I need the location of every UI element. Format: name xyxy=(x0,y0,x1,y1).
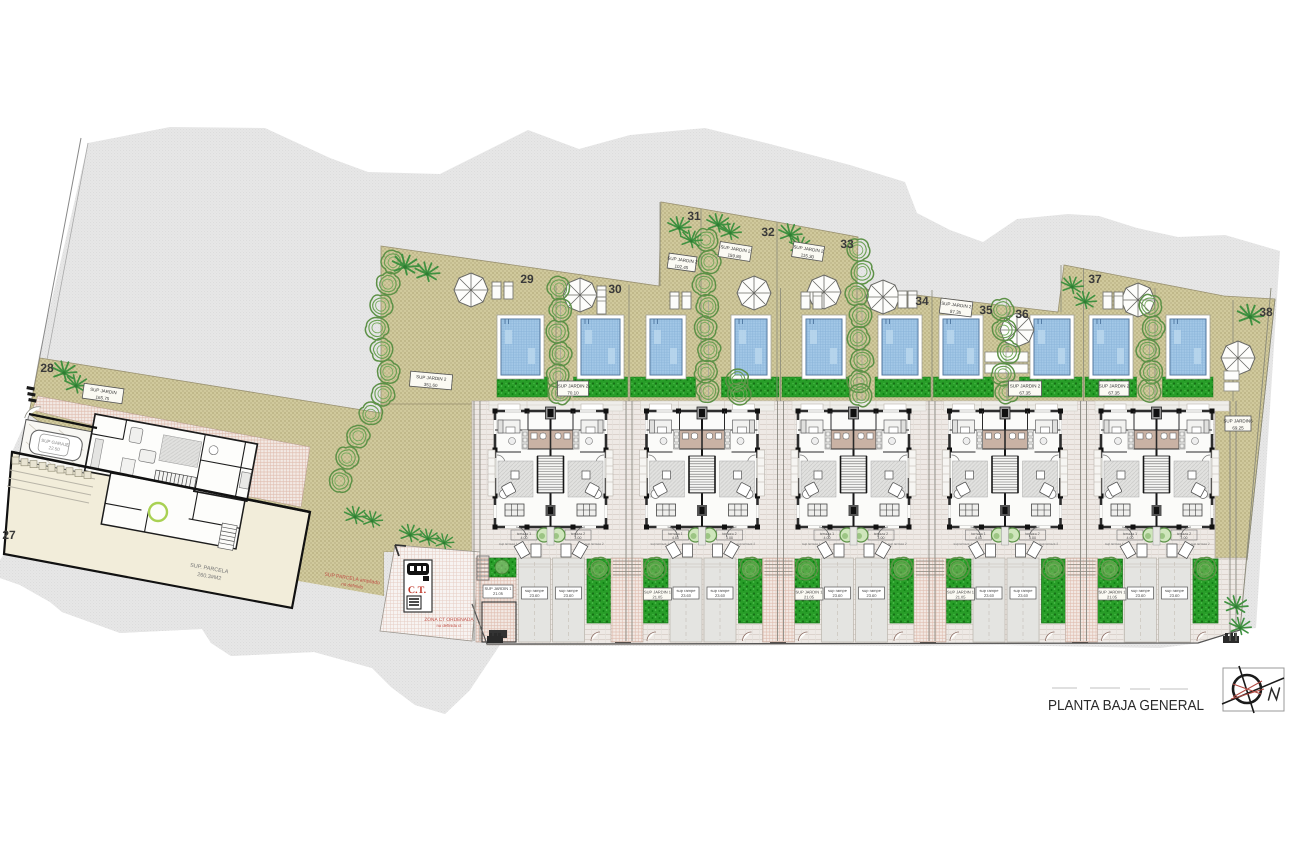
svg-text:23.60: 23.60 xyxy=(832,593,843,598)
svg-text:38: 38 xyxy=(1259,305,1273,319)
svg-text:23.60: 23.60 xyxy=(1135,593,1146,598)
svg-text:SUP JARDIN 2: SUP JARDIN 2 xyxy=(558,384,589,389)
svg-text:23.60: 23.60 xyxy=(1169,593,1180,598)
svg-text:sup terraza 2: sup terraza 2 xyxy=(585,542,604,546)
svg-text:sup terraza 1: sup terraza 1 xyxy=(499,542,518,546)
svg-text:67.35: 67.35 xyxy=(1108,391,1120,396)
svg-text:29: 29 xyxy=(520,272,534,286)
svg-text:PLANTA BAJA GENERAL: PLANTA BAJA GENERAL xyxy=(1048,698,1204,714)
svg-text:4.00: 4.00 xyxy=(672,536,679,540)
svg-text:4.00: 4.00 xyxy=(726,536,733,540)
svg-text:SUP JARDIN6: SUP JARDIN6 xyxy=(1223,419,1253,424)
svg-text:sup terraza 1: sup terraza 1 xyxy=(651,542,670,546)
svg-text:35: 35 xyxy=(979,303,993,317)
svg-text:33: 33 xyxy=(840,237,854,251)
svg-text:21.05: 21.05 xyxy=(804,595,815,600)
svg-text:21.05: 21.05 xyxy=(652,595,663,600)
svg-text:4.00: 4.00 xyxy=(1127,536,1134,540)
svg-text:sup terraza 2: sup terraza 2 xyxy=(888,542,907,546)
svg-text:36: 36 xyxy=(1015,307,1029,321)
svg-text:sup terraza 2: sup terraza 2 xyxy=(1191,542,1210,546)
svg-text:23.60: 23.60 xyxy=(1018,593,1029,598)
svg-text:23.60: 23.60 xyxy=(563,593,574,598)
svg-text:4.00: 4.00 xyxy=(824,536,831,540)
svg-text:sup terraza 1: sup terraza 1 xyxy=(1105,542,1124,546)
svg-text:32: 32 xyxy=(761,225,775,239)
svg-text:21.05: 21.05 xyxy=(493,591,504,596)
svg-text:SUP JARDIN 2: SUP JARDIN 2 xyxy=(1099,384,1130,389)
svg-text:70.10: 70.10 xyxy=(567,391,579,396)
svg-text:sup terraza 1: sup terraza 1 xyxy=(954,542,973,546)
svg-text:4.00: 4.00 xyxy=(1181,536,1188,540)
svg-text:23.60: 23.60 xyxy=(529,593,540,598)
svg-text:no definido ct: no definido ct xyxy=(437,623,463,628)
svg-text:23.60: 23.60 xyxy=(681,593,692,598)
svg-text:4.00: 4.00 xyxy=(575,536,582,540)
svg-text:sup terraza 2: sup terraza 2 xyxy=(1040,542,1059,546)
svg-text:23.60: 23.60 xyxy=(715,593,726,598)
svg-text:4.00: 4.00 xyxy=(975,536,982,540)
svg-text:4.00: 4.00 xyxy=(521,536,528,540)
svg-text:34: 34 xyxy=(915,294,929,308)
svg-text:27: 27 xyxy=(2,528,16,542)
svg-text:C.T.: C.T. xyxy=(408,585,427,596)
svg-text:21.05: 21.05 xyxy=(1107,595,1118,600)
svg-text:23.60: 23.60 xyxy=(866,593,877,598)
svg-text:30: 30 xyxy=(608,282,622,296)
svg-text:sup terraza 1: sup terraza 1 xyxy=(802,542,821,546)
svg-text:sup terraza 2: sup terraza 2 xyxy=(737,542,756,546)
svg-text:67.35: 67.35 xyxy=(1019,391,1031,396)
svg-text:69.25: 69.25 xyxy=(1232,426,1244,431)
svg-text:4.00: 4.00 xyxy=(878,536,885,540)
svg-text:28: 28 xyxy=(40,361,54,375)
svg-text:SUP JARDIN 2: SUP JARDIN 2 xyxy=(1010,384,1041,389)
svg-text:37: 37 xyxy=(1088,272,1102,286)
svg-text:31: 31 xyxy=(687,209,701,223)
svg-text:21.05: 21.05 xyxy=(955,595,966,600)
svg-text:23.60: 23.60 xyxy=(984,593,995,598)
svg-text:4.00: 4.00 xyxy=(1029,536,1036,540)
